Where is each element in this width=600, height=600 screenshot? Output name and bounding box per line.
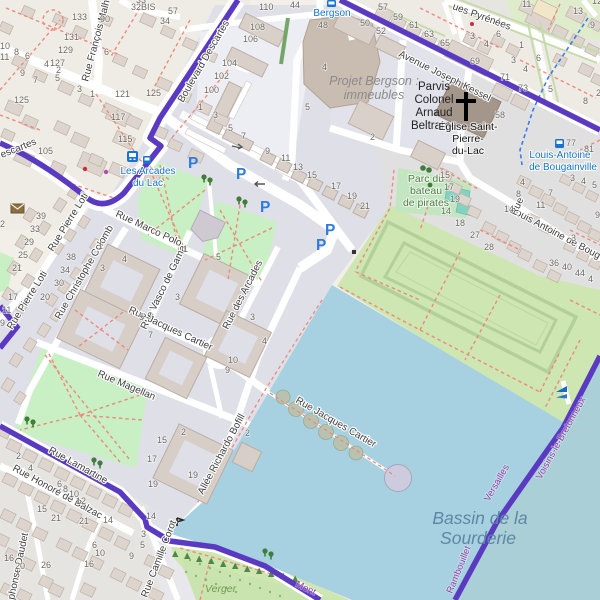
svg-text:19: 19	[148, 479, 158, 489]
svg-text:Parvis: Parvis	[418, 81, 450, 93]
svg-text:8: 8	[516, 189, 521, 199]
svg-text:34: 34	[60, 265, 70, 275]
svg-text:7: 7	[241, 131, 246, 141]
svg-text:6: 6	[92, 540, 97, 550]
svg-text:4: 4	[520, 177, 525, 187]
svg-text:44: 44	[575, 268, 585, 278]
svg-text:50: 50	[360, 18, 370, 28]
svg-text:21: 21	[12, 263, 22, 273]
svg-text:4: 4	[523, 64, 528, 74]
svg-text:13: 13	[573, 6, 583, 16]
svg-text:2: 2	[16, 451, 21, 461]
svg-text:P: P	[325, 222, 335, 239]
svg-text:57: 57	[168, 6, 178, 16]
svg-text:4: 4	[322, 62, 327, 72]
svg-text:34: 34	[160, 16, 170, 26]
svg-text:7: 7	[33, 75, 38, 85]
svg-text:12: 12	[76, 496, 86, 506]
svg-text:36: 36	[549, 258, 559, 268]
svg-text:7: 7	[148, 330, 153, 340]
svg-text:121: 121	[115, 89, 130, 99]
svg-text:21: 21	[360, 201, 370, 211]
svg-text:52: 52	[376, 26, 386, 36]
svg-text:33: 33	[30, 224, 40, 234]
svg-text:11: 11	[522, 0, 531, 9]
svg-text:14: 14	[103, 515, 113, 525]
svg-text:bateau: bateau	[410, 185, 442, 197]
svg-text:immeubles: immeubles	[344, 88, 404, 102]
svg-text:108: 108	[250, 22, 265, 32]
svg-text:131: 131	[64, 32, 79, 42]
svg-text:33: 33	[136, 0, 146, 5]
svg-text:39: 39	[36, 211, 46, 221]
svg-text:3: 3	[470, 31, 475, 41]
svg-text:Arnaud: Arnaud	[415, 107, 452, 119]
svg-text:du Lac: du Lac	[133, 178, 163, 189]
svg-text:2: 2	[245, 428, 250, 438]
svg-text:12: 12	[592, 0, 600, 6]
svg-text:3: 3	[141, 529, 146, 539]
svg-text:17: 17	[331, 181, 341, 191]
svg-text:2: 2	[596, 88, 600, 98]
svg-text:4: 4	[588, 274, 593, 284]
svg-text:4: 4	[44, 59, 49, 69]
svg-text:59: 59	[393, 12, 403, 22]
svg-text:Verger: Verger	[205, 583, 237, 595]
svg-text:73: 73	[518, 83, 528, 93]
svg-text:P: P	[316, 237, 326, 254]
svg-text:11: 11	[2, 305, 11, 315]
svg-text:44: 44	[290, 0, 300, 10]
svg-text:100: 100	[204, 85, 219, 95]
svg-text:105: 105	[38, 146, 53, 156]
svg-text:16: 16	[84, 559, 94, 569]
svg-text:9: 9	[225, 365, 230, 375]
svg-text:5: 5	[216, 252, 221, 262]
svg-text:81: 81	[584, 144, 594, 154]
svg-text:Les Arcades: Les Arcades	[120, 166, 175, 177]
svg-text:30: 30	[54, 278, 64, 288]
svg-text:15: 15	[440, 170, 450, 180]
svg-text:2: 2	[370, 132, 375, 142]
svg-text:125: 125	[14, 95, 29, 105]
svg-text:15: 15	[157, 435, 167, 445]
svg-text:4: 4	[484, 39, 489, 49]
svg-text:6: 6	[496, 29, 501, 39]
svg-text:27: 27	[470, 230, 480, 240]
svg-text:20: 20	[15, 561, 25, 571]
svg-text:19: 19	[347, 191, 357, 201]
svg-text:57: 57	[378, 2, 388, 12]
svg-text:4: 4	[262, 336, 267, 346]
svg-text:14: 14	[441, 206, 451, 216]
svg-text:du-Lac: du-Lac	[452, 145, 484, 157]
svg-text:6: 6	[104, 47, 109, 57]
svg-text:P: P	[188, 155, 198, 172]
svg-text:3: 3	[250, 312, 255, 322]
svg-text:15: 15	[37, 504, 47, 514]
svg-text:16: 16	[4, 553, 14, 563]
svg-text:3: 3	[77, 84, 82, 94]
svg-text:9: 9	[590, 20, 595, 30]
svg-text:9: 9	[20, 68, 25, 78]
svg-text:15: 15	[307, 170, 317, 180]
svg-text:Pierre-: Pierre-	[452, 133, 484, 145]
svg-text:102: 102	[214, 71, 229, 81]
svg-text:7: 7	[548, 188, 553, 198]
svg-text:1: 1	[90, 89, 95, 99]
svg-text:25: 25	[18, 250, 28, 260]
svg-text:9: 9	[265, 146, 270, 156]
svg-text:Sourderie: Sourderie	[440, 528, 516, 548]
svg-text:61: 61	[409, 20, 419, 30]
svg-text:6: 6	[57, 479, 62, 489]
svg-text:117: 117	[111, 112, 125, 122]
svg-text:Projet Bergson :: Projet Bergson :	[329, 74, 419, 88]
svg-text:26: 26	[41, 560, 51, 570]
svg-text:6: 6	[25, 51, 30, 61]
svg-text:13: 13	[293, 162, 303, 172]
svg-text:Colonel: Colonel	[415, 94, 454, 106]
svg-text:2: 2	[181, 427, 186, 437]
svg-text:4: 4	[28, 463, 33, 473]
svg-text:40: 40	[562, 262, 572, 272]
svg-text:133: 133	[72, 12, 87, 22]
svg-text:3: 3	[570, 173, 575, 183]
svg-text:110: 110	[259, 2, 273, 12]
svg-text:5: 5	[305, 102, 310, 112]
svg-text:21: 21	[79, 516, 89, 526]
svg-text:9: 9	[129, 551, 134, 561]
svg-text:1: 1	[519, 40, 524, 50]
svg-text:14: 14	[146, 511, 156, 521]
svg-text:77: 77	[566, 138, 576, 148]
svg-text:71: 71	[500, 72, 510, 82]
svg-text:5: 5	[140, 540, 145, 550]
svg-text:Bassin de la: Bassin de la	[432, 508, 528, 528]
svg-text:P: P	[260, 199, 270, 216]
svg-text:69: 69	[470, 56, 480, 66]
svg-text:3: 3	[213, 110, 218, 120]
svg-text:8: 8	[63, 484, 68, 494]
svg-text:63: 63	[424, 29, 434, 39]
svg-text:4: 4	[581, 176, 586, 186]
svg-text:4: 4	[122, 254, 127, 264]
svg-text:65: 65	[440, 38, 450, 48]
svg-text:5: 5	[548, 84, 553, 94]
svg-text:18: 18	[455, 218, 465, 228]
svg-text:8: 8	[583, 96, 588, 106]
svg-text:6: 6	[536, 53, 541, 63]
svg-text:90: 90	[100, 14, 110, 24]
svg-text:129: 129	[58, 45, 73, 55]
svg-text:5: 5	[592, 180, 597, 190]
svg-text:10: 10	[0, 41, 10, 51]
svg-text:1: 1	[98, 241, 103, 251]
svg-text:3: 3	[100, 263, 105, 273]
svg-text:Bergson: Bergson	[313, 8, 350, 19]
svg-text:1: 1	[183, 244, 188, 254]
svg-text:9: 9	[0, 318, 5, 328]
svg-text:11: 11	[281, 153, 290, 163]
svg-text:3: 3	[175, 292, 180, 302]
svg-text:58: 58	[495, 110, 505, 120]
svg-text:5: 5	[139, 312, 144, 322]
svg-text:Parc du: Parc du	[408, 173, 444, 185]
svg-text:14: 14	[504, 204, 514, 214]
svg-text:5: 5	[55, 73, 60, 83]
svg-text:Louis-Antoine: Louis-Antoine	[529, 150, 591, 161]
svg-text:9: 9	[595, 210, 600, 220]
svg-text:29: 29	[24, 237, 34, 247]
svg-text:104: 104	[222, 58, 237, 68]
svg-text:8: 8	[14, 47, 19, 57]
svg-text:28: 28	[484, 242, 494, 252]
svg-text:11: 11	[536, 200, 545, 210]
svg-text:11: 11	[0, 52, 9, 62]
svg-text:115: 115	[118, 134, 132, 144]
svg-text:20: 20	[40, 292, 50, 302]
svg-text:5: 5	[228, 123, 233, 133]
svg-text:1: 1	[198, 102, 203, 112]
svg-text:de Bougainville: de Bougainville	[529, 162, 597, 173]
svg-text:17: 17	[444, 182, 454, 192]
svg-text:Église Saint-: Église Saint-	[439, 120, 498, 133]
svg-text:2: 2	[0, 219, 5, 229]
svg-text:3: 3	[571, 233, 576, 243]
svg-text:21: 21	[51, 513, 61, 523]
svg-text:3: 3	[511, 55, 516, 65]
svg-text:106: 106	[243, 34, 258, 44]
svg-text:38: 38	[66, 252, 76, 262]
svg-text:125: 125	[146, 88, 161, 98]
svg-text:17: 17	[147, 454, 157, 464]
svg-text:P: P	[236, 166, 246, 183]
svg-text:19: 19	[450, 194, 460, 204]
svg-text:17: 17	[8, 292, 18, 302]
svg-text:48: 48	[318, 20, 328, 30]
svg-text:19: 19	[188, 470, 198, 480]
svg-text:10: 10	[228, 355, 238, 365]
